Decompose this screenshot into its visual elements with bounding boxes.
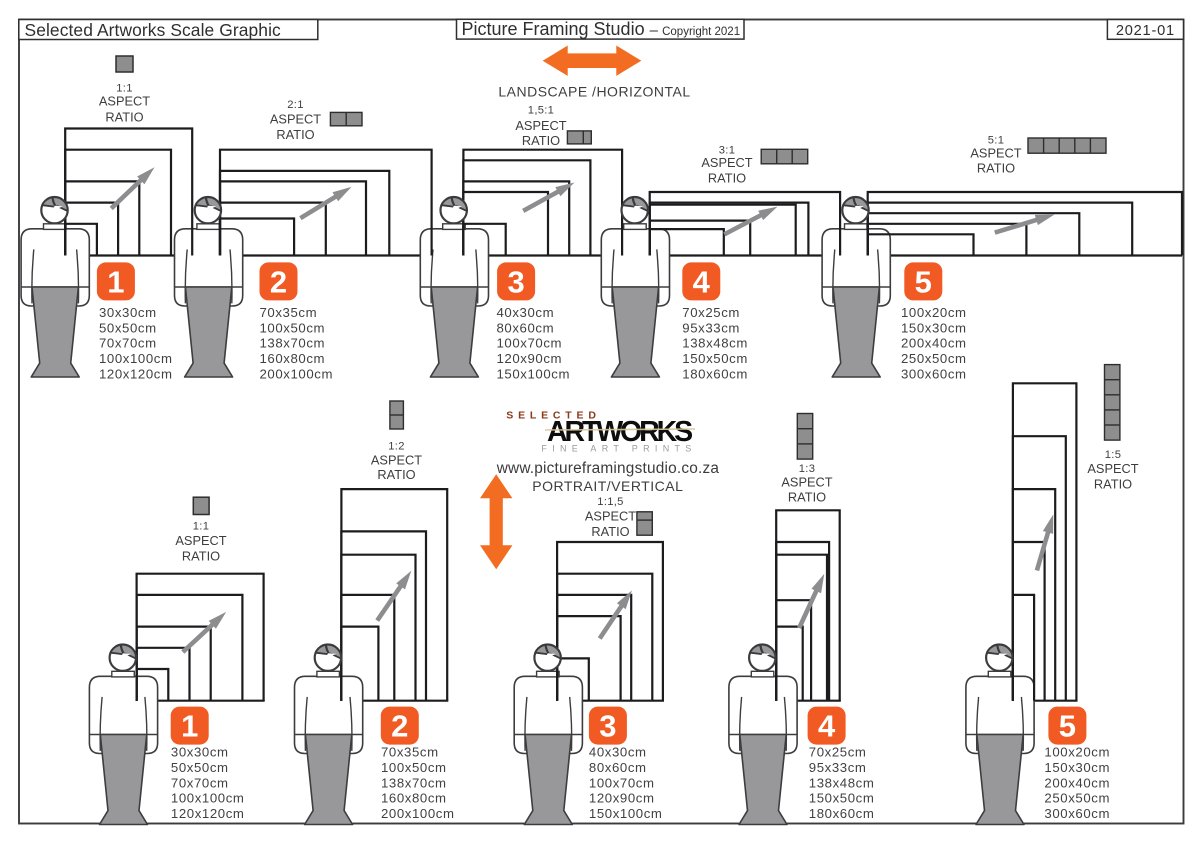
- svg-text:200x40cm: 200x40cm: [901, 336, 967, 351]
- svg-text:2:1: 2:1: [287, 99, 303, 111]
- svg-text:1: 1: [181, 709, 198, 744]
- svg-text:1:5: 1:5: [1105, 449, 1121, 461]
- svg-text:138x48cm: 138x48cm: [809, 775, 875, 790]
- svg-text:30x30cm: 30x30cm: [99, 305, 157, 320]
- svg-text:100x100cm: 100x100cm: [171, 791, 245, 806]
- svg-text:2: 2: [391, 709, 408, 744]
- svg-text:1: 1: [107, 264, 124, 299]
- svg-text:138x70cm: 138x70cm: [381, 775, 447, 790]
- svg-text:RATIO: RATIO: [522, 133, 560, 148]
- svg-text:150x100cm: 150x100cm: [589, 806, 663, 821]
- svg-text:100x50cm: 100x50cm: [260, 320, 326, 335]
- svg-text:5: 5: [915, 264, 932, 299]
- svg-text:300x60cm: 300x60cm: [901, 366, 967, 381]
- svg-text:RATIO: RATIO: [708, 171, 746, 186]
- svg-text:150x30cm: 150x30cm: [1044, 760, 1110, 775]
- svg-text:2: 2: [270, 264, 287, 299]
- svg-text:70x35cm: 70x35cm: [381, 745, 439, 760]
- svg-text:RATIO: RATIO: [591, 524, 629, 539]
- svg-text:4: 4: [693, 264, 711, 299]
- svg-text:80x60cm: 80x60cm: [497, 320, 555, 335]
- svg-text:ASPECT: ASPECT: [701, 155, 752, 170]
- svg-text:ASPECT: ASPECT: [270, 112, 321, 127]
- svg-text:120x120cm: 120x120cm: [99, 366, 173, 381]
- svg-text:70x25cm: 70x25cm: [682, 305, 740, 320]
- svg-text:150x30cm: 150x30cm: [901, 320, 967, 335]
- svg-text:100x70cm: 100x70cm: [497, 336, 563, 351]
- svg-text:200x100cm: 200x100cm: [260, 366, 334, 381]
- svg-text:95x33cm: 95x33cm: [682, 320, 740, 335]
- svg-text:40x30cm: 40x30cm: [589, 745, 647, 760]
- svg-text:RATIO: RATIO: [105, 109, 143, 124]
- svg-text:150x50cm: 150x50cm: [809, 791, 875, 806]
- svg-text:www.pictureframingstudio.co.za: www.pictureframingstudio.co.za: [496, 460, 720, 477]
- svg-text:70x25cm: 70x25cm: [809, 745, 867, 760]
- svg-text:ASPECT: ASPECT: [1087, 461, 1138, 476]
- svg-text:5: 5: [1059, 709, 1076, 744]
- svg-text:ASPECT: ASPECT: [371, 452, 422, 467]
- svg-text:300x60cm: 300x60cm: [1044, 806, 1110, 821]
- svg-text:LANDSCAPE /HORIZONTAL: LANDSCAPE /HORIZONTAL: [498, 84, 690, 100]
- svg-text:3: 3: [507, 264, 524, 299]
- svg-text:50x50cm: 50x50cm: [171, 760, 229, 775]
- svg-text:100x70cm: 100x70cm: [589, 775, 655, 790]
- svg-text:100x20cm: 100x20cm: [901, 305, 967, 320]
- svg-text:1,5:1: 1,5:1: [528, 105, 554, 117]
- svg-text:RATIO: RATIO: [977, 161, 1015, 176]
- svg-text:70x70cm: 70x70cm: [171, 775, 229, 790]
- svg-text:250x50cm: 250x50cm: [1044, 791, 1110, 806]
- svg-text:180x60cm: 180x60cm: [682, 366, 748, 381]
- svg-text:200x40cm: 200x40cm: [1044, 775, 1110, 790]
- svg-text:RATIO: RATIO: [182, 548, 220, 563]
- svg-text:1:1: 1:1: [193, 521, 209, 533]
- svg-text:200x100cm: 200x100cm: [381, 806, 455, 821]
- svg-text:1:1: 1:1: [116, 82, 132, 94]
- svg-text:RATIO: RATIO: [788, 489, 826, 504]
- svg-text:120x90cm: 120x90cm: [497, 351, 563, 366]
- svg-text:RATIO: RATIO: [377, 467, 415, 482]
- svg-text:ASPECT: ASPECT: [515, 118, 566, 133]
- svg-text:4: 4: [818, 709, 836, 744]
- svg-text:70x35cm: 70x35cm: [260, 305, 318, 320]
- svg-text:160x80cm: 160x80cm: [260, 351, 326, 366]
- svg-text:FINE ART PRINTS: FINE ART PRINTS: [541, 444, 696, 454]
- svg-text:100x50cm: 100x50cm: [381, 760, 447, 775]
- svg-text:RATIO: RATIO: [276, 127, 314, 142]
- svg-text:120x120cm: 120x120cm: [171, 806, 245, 821]
- svg-text:70x70cm: 70x70cm: [99, 336, 157, 351]
- svg-text:ASPECT: ASPECT: [585, 508, 636, 523]
- svg-text:1:2: 1:2: [388, 441, 404, 453]
- svg-text:ASPECT: ASPECT: [781, 474, 832, 489]
- svg-text:100x20cm: 100x20cm: [1044, 745, 1110, 760]
- svg-text:100x100cm: 100x100cm: [99, 351, 173, 366]
- svg-text:ASPECT: ASPECT: [175, 533, 226, 548]
- svg-text:30x30cm: 30x30cm: [171, 745, 229, 760]
- svg-text:40x30cm: 40x30cm: [497, 305, 555, 320]
- svg-text:138x70cm: 138x70cm: [260, 336, 326, 351]
- svg-text:80x60cm: 80x60cm: [589, 760, 647, 775]
- svg-text:RATIO: RATIO: [1094, 476, 1132, 491]
- svg-text:250x50cm: 250x50cm: [901, 351, 967, 366]
- svg-text:180x60cm: 180x60cm: [809, 806, 875, 821]
- svg-text:3: 3: [599, 709, 616, 744]
- svg-text:150x100cm: 150x100cm: [497, 366, 571, 381]
- svg-text:1:3: 1:3: [799, 463, 815, 475]
- svg-text:ASPECT: ASPECT: [99, 94, 150, 109]
- svg-text:160x80cm: 160x80cm: [381, 791, 447, 806]
- svg-text:Selected Artworks Scale Graphi: Selected Artworks Scale Graphic: [25, 20, 282, 40]
- svg-text:120x90cm: 120x90cm: [589, 791, 655, 806]
- svg-text:ASPECT: ASPECT: [970, 146, 1021, 161]
- svg-text:138x48cm: 138x48cm: [682, 336, 748, 351]
- svg-text:150x50cm: 150x50cm: [682, 351, 748, 366]
- svg-text:PORTRAIT/VERTICAL: PORTRAIT/VERTICAL: [532, 478, 683, 494]
- svg-text:1:1,5: 1:1,5: [597, 496, 623, 508]
- svg-text:50x50cm: 50x50cm: [99, 320, 157, 335]
- svg-text:2021-01: 2021-01: [1116, 23, 1175, 39]
- svg-text:95x33cm: 95x33cm: [809, 760, 867, 775]
